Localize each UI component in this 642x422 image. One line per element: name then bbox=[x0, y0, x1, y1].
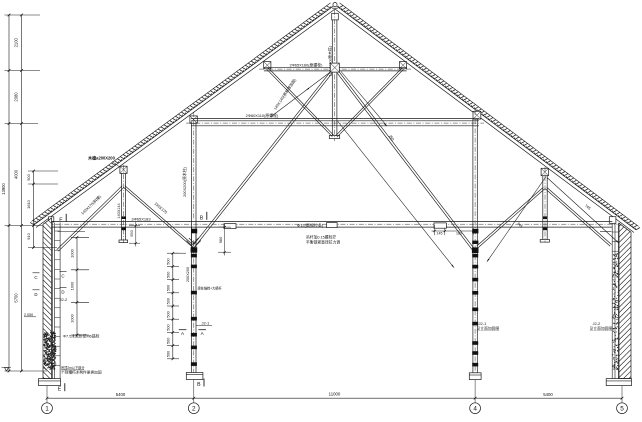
svg-text:500: 500 bbox=[26, 173, 31, 180]
svg-text:2: 2 bbox=[192, 406, 196, 413]
svg-text:500: 500 bbox=[166, 324, 170, 330]
svg-text:D: D bbox=[61, 290, 64, 295]
svg-text:吊杆加0.15螺栓拧: 吊杆加0.15螺栓拧 bbox=[306, 235, 336, 240]
svg-text:J2-2: J2-2 bbox=[60, 297, 69, 302]
svg-text:木檩a200X200: 木檩a200X200 bbox=[87, 155, 116, 161]
svg-text:500: 500 bbox=[166, 338, 170, 344]
svg-text:500: 500 bbox=[166, 258, 170, 264]
svg-text:J2-1: J2-1 bbox=[479, 321, 488, 326]
svg-text:4: 4 bbox=[473, 406, 477, 413]
svg-text:Φ12(圆钢拉条): Φ12(圆钢拉条) bbox=[297, 222, 324, 228]
svg-text:C: C bbox=[61, 274, 64, 279]
svg-text:2Φ60X110(原螺栓): 2Φ60X110(原螺栓) bbox=[246, 113, 279, 118]
svg-text:500: 500 bbox=[166, 285, 170, 291]
svg-text:180: 180 bbox=[456, 232, 462, 236]
svg-text:B: B bbox=[200, 216, 204, 222]
svg-text:1610: 1610 bbox=[26, 199, 31, 208]
svg-text:2080: 2080 bbox=[14, 92, 19, 102]
svg-text:500: 500 bbox=[166, 298, 170, 304]
svg-text:个别糟朽木构件更换加固: 个别糟朽木构件更换加固 bbox=[61, 369, 102, 374]
svg-text:D: D bbox=[34, 292, 37, 297]
svg-text:200X200: 200X200 bbox=[186, 267, 190, 282]
svg-text:2.050: 2.050 bbox=[24, 313, 33, 317]
svg-text:2Φ65X160(原螺栓): 2Φ65X160(原螺栓) bbox=[290, 62, 324, 67]
svg-text:E: E bbox=[59, 218, 63, 224]
svg-text:1000: 1000 bbox=[70, 281, 75, 290]
svg-text:910: 910 bbox=[26, 232, 31, 239]
svg-text:1000: 1000 bbox=[70, 248, 75, 257]
svg-text:见立面加固图: 见立面加固图 bbox=[590, 326, 613, 331]
svg-text:1: 1 bbox=[45, 406, 49, 413]
svg-text:B: B bbox=[197, 382, 201, 388]
svg-text:吊顶2m以下部分: 吊顶2m以下部分 bbox=[61, 365, 85, 370]
svg-text:J2-2: J2-2 bbox=[593, 321, 602, 326]
svg-text:5: 5 bbox=[620, 406, 624, 413]
svg-text:11000: 11000 bbox=[329, 391, 341, 396]
svg-text:145: 145 bbox=[437, 232, 443, 236]
svg-text:平衡锁紧直径拉力调: 平衡锁紧直径拉力调 bbox=[306, 239, 340, 244]
svg-text:E: E bbox=[58, 387, 62, 393]
svg-text:2100: 2100 bbox=[14, 38, 19, 48]
svg-text:500: 500 bbox=[166, 272, 170, 278]
svg-text:500: 500 bbox=[166, 311, 170, 317]
svg-text:140X144: 140X144 bbox=[117, 203, 121, 218]
svg-text:500: 500 bbox=[166, 351, 170, 357]
svg-text:13900: 13900 bbox=[1, 183, 6, 195]
svg-text:C: C bbox=[34, 275, 37, 280]
svg-text:Φ7.5水泥砂浆M6锚栓: Φ7.5水泥砂浆M6锚栓 bbox=[63, 334, 100, 339]
svg-text:5400: 5400 bbox=[116, 392, 126, 397]
svg-text:1000: 1000 bbox=[70, 313, 75, 322]
svg-text:5400: 5400 bbox=[543, 392, 553, 397]
svg-text:200X200(原木柱): 200X200(原木柱) bbox=[182, 166, 187, 197]
svg-text:5700: 5700 bbox=[14, 293, 19, 303]
svg-text:见立面加固图: 见立面加固图 bbox=[477, 326, 500, 331]
svg-text:980: 980 bbox=[218, 236, 223, 243]
svg-text:梁柱锚栓+大横杆: 梁柱锚栓+大横杆 bbox=[198, 285, 223, 290]
svg-text:3Φ65X183: 3Φ65X183 bbox=[131, 217, 151, 222]
svg-text:J2-1: J2-1 bbox=[202, 320, 211, 325]
svg-text:4000: 4000 bbox=[14, 169, 19, 179]
svg-text:550: 550 bbox=[129, 229, 134, 236]
